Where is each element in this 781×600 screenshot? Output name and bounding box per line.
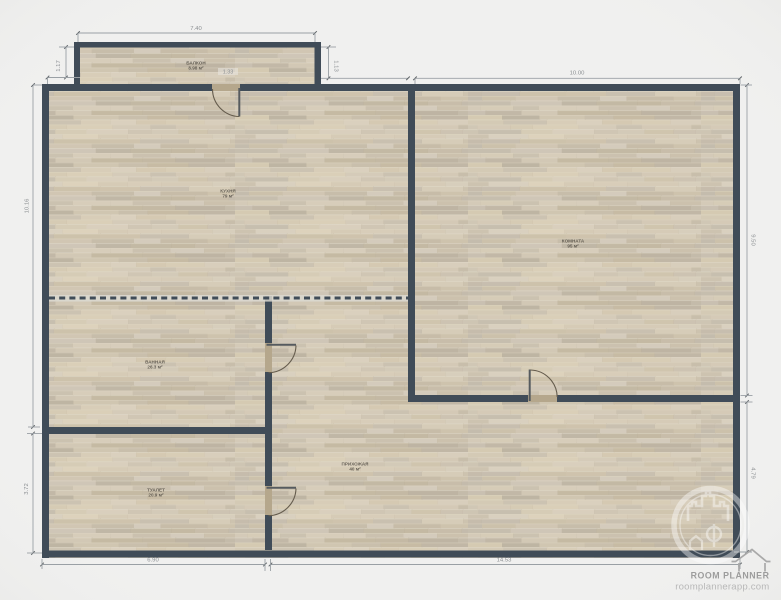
svg-text:14.53: 14.53 [497, 558, 512, 564]
svg-text:6.90: 6.90 [147, 558, 159, 564]
svg-text:26.3 м²: 26.3 м² [147, 365, 163, 370]
svg-text:7.40: 7.40 [190, 26, 202, 32]
svg-text:1.13: 1.13 [333, 60, 339, 72]
svg-text:roomplannerapp.com: roomplannerapp.com [675, 582, 769, 593]
svg-text:3.72: 3.72 [24, 483, 30, 494]
svg-text:79 м²: 79 м² [222, 194, 234, 199]
svg-text:9.50: 9.50 [750, 234, 756, 246]
svg-text:1.33: 1.33 [223, 70, 234, 76]
svg-text:20.9 м²: 20.9 м² [148, 493, 164, 498]
svg-text:40 м²: 40 м² [349, 467, 361, 472]
svg-text:4.79: 4.79 [750, 467, 756, 478]
svg-text:ROOM PLANNER: ROOM PLANNER [691, 571, 770, 581]
svg-text:8.98 м²: 8.98 м² [188, 66, 204, 71]
svg-text:10.00: 10.00 [570, 71, 585, 77]
svg-text:10.16: 10.16 [25, 198, 31, 213]
svg-text:1.17: 1.17 [56, 60, 62, 71]
svg-text:95 м²: 95 м² [567, 244, 579, 249]
